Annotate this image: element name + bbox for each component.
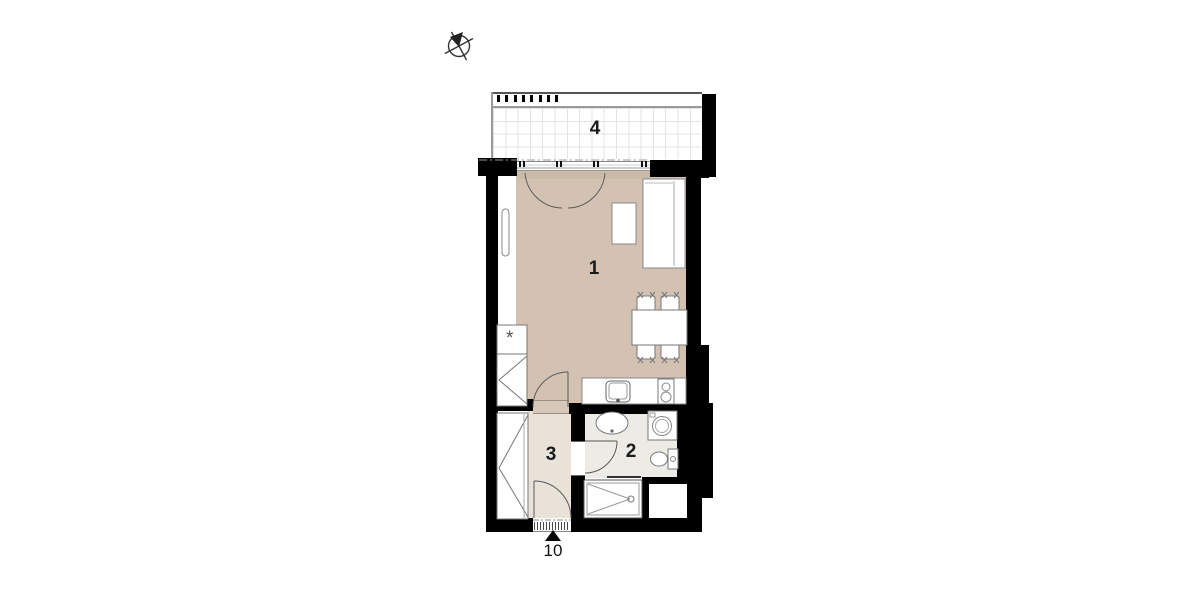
door-hall-bathroom xyxy=(585,441,617,473)
desk xyxy=(612,203,636,244)
plan-vector-overlay xyxy=(0,0,1200,600)
entrance-unit-label: 10 xyxy=(544,541,563,561)
toilet xyxy=(651,449,679,469)
radiator xyxy=(502,209,509,256)
entrance-door xyxy=(534,481,571,518)
dining-table xyxy=(632,310,687,345)
chair xyxy=(637,292,655,311)
bed xyxy=(643,179,685,268)
chair xyxy=(637,344,655,363)
balcony-door-arcs xyxy=(525,173,605,208)
compass-icon xyxy=(445,32,473,60)
entrance-threshold-lines xyxy=(533,520,571,532)
kitchen-counter xyxy=(582,378,686,404)
room-label-bathroom: 2 xyxy=(626,441,637,463)
fridge-symbol: * xyxy=(506,334,513,344)
chair xyxy=(661,292,679,311)
room-label-hall: 3 xyxy=(546,444,557,466)
room-label-living: 1 xyxy=(589,258,600,280)
chair xyxy=(661,344,679,363)
window-glazing xyxy=(517,161,650,171)
washbasin xyxy=(596,412,628,434)
floor-plan: 1 2 3 4 10 * xyxy=(0,0,1200,600)
door-living-hall xyxy=(533,372,568,407)
shower xyxy=(584,480,642,518)
washing-machine xyxy=(648,411,677,440)
room-label-balcony: 4 xyxy=(590,118,601,140)
wardrobe xyxy=(497,413,528,519)
